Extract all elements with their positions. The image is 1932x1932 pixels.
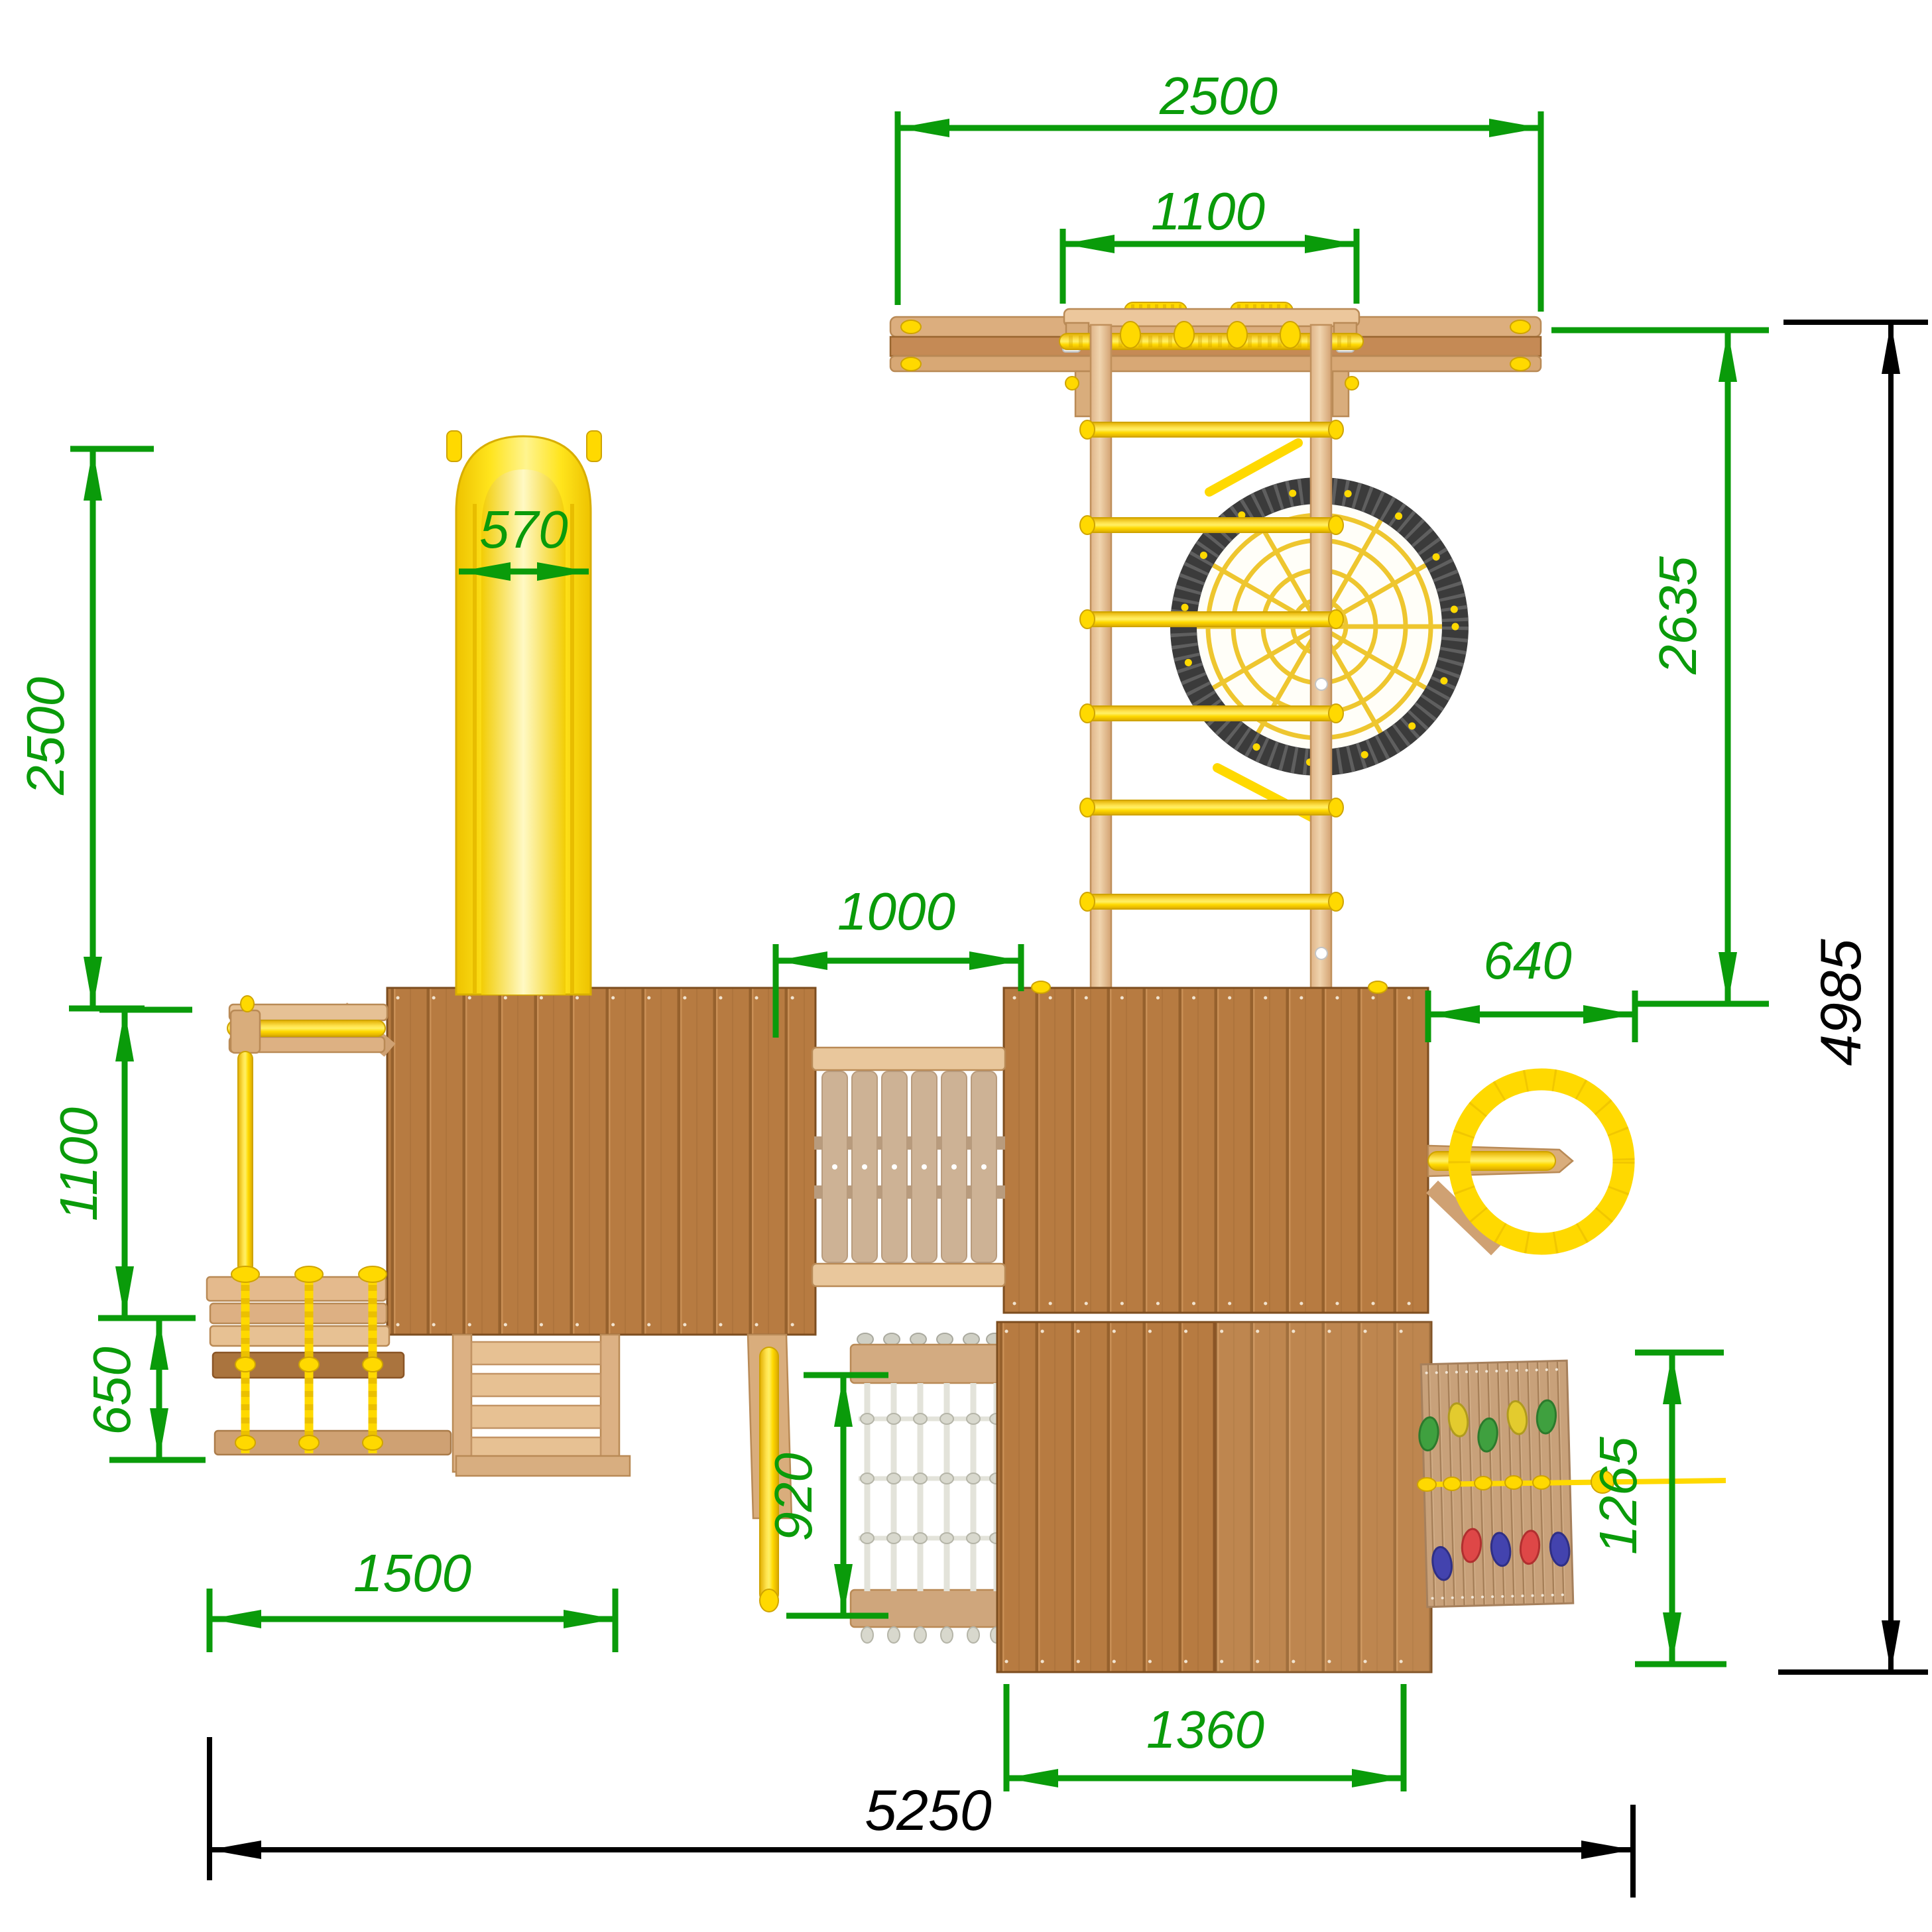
dim-climbwall-drop: 1265 <box>1589 1353 1726 1664</box>
tower-right-roof <box>1004 981 1428 1313</box>
beam-bracket <box>1333 371 1349 416</box>
stair-steps <box>471 1342 601 1460</box>
rope-net <box>851 1333 1006 1643</box>
dim-label-swing-frame-depth: 1100 <box>49 1107 108 1221</box>
bridge-deck <box>812 1048 1005 1286</box>
bridge-planks <box>822 1071 996 1262</box>
bridge-frame <box>812 1048 1005 1070</box>
dim-label-rope-bridge-depth: 650 <box>82 1347 141 1435</box>
playground-plan-svg: 2500 1100 570 2500 1100 650 1000 640 263… <box>0 0 1932 1932</box>
dim-slide-length: 2500 <box>16 449 154 1008</box>
rope-bridge-plank <box>210 1303 387 1323</box>
dim-label-overall-width: 5250 <box>865 1779 991 1842</box>
steering-wheel <box>1428 1079 1624 1249</box>
net-ropes <box>859 1383 1002 1591</box>
beam-bolt <box>901 357 921 371</box>
dim-rope-bridge-depth: 650 <box>82 1318 206 1460</box>
roof-bolt <box>1368 981 1387 993</box>
dim-lower-platform-width: 1360 <box>1006 1684 1404 1791</box>
beam-bolt <box>1510 320 1530 333</box>
dim-top-mount-width: 1100 <box>1063 182 1357 304</box>
stair-stringer <box>453 1335 471 1472</box>
rail-hole <box>1315 947 1327 959</box>
rope-clamp <box>1280 322 1300 348</box>
roof-bolt <box>1032 981 1050 993</box>
frame-end-block <box>231 1010 260 1053</box>
top-beam <box>890 302 1541 416</box>
roof-panel-highlight <box>1215 1322 1431 1672</box>
nest-hanger-strap <box>1217 768 1326 825</box>
rope-bridge-plank <box>210 1326 389 1346</box>
stair-base-board <box>456 1456 630 1476</box>
wheel-axle <box>1428 1152 1555 1170</box>
dim-label-net-drop: 920 <box>764 1453 823 1541</box>
bridge-frame <box>812 1264 1005 1286</box>
dim-label-stairs-bay-width: 1500 <box>353 1543 471 1602</box>
dim-label-top-beam-width: 2500 <box>1159 66 1278 125</box>
lower-platform-roof <box>997 1322 1431 1672</box>
rail-hole <box>1315 678 1327 690</box>
frame-yellow-post <box>238 1052 253 1273</box>
dim-overall-width: 5250 <box>210 1737 1633 1898</box>
pole-tip <box>760 1589 778 1612</box>
dim-stairs-bay-width: 1500 <box>210 1543 615 1652</box>
rope-clamp <box>1227 322 1247 348</box>
rope-bridge-plank <box>207 1277 386 1301</box>
beam-mount-plank <box>1064 309 1359 326</box>
beam-bolt <box>901 320 921 333</box>
stair-stringer <box>601 1335 619 1472</box>
slide-flange <box>587 431 601 461</box>
net-bottom-bar <box>851 1590 1006 1627</box>
dim-label-climbwall-drop: 1265 <box>1589 1437 1648 1555</box>
dim-label-wheel-offset: 640 <box>1483 931 1571 990</box>
beam-bolt <box>1510 357 1530 371</box>
beam-bottom-plank <box>890 356 1541 371</box>
dim-label-bridge-span: 1000 <box>837 882 955 941</box>
slide-flange <box>447 431 461 461</box>
dim-label-lower-platform-width: 1360 <box>1146 1700 1264 1759</box>
dim-label-beam-to-tower-depth: 2635 <box>1648 556 1707 675</box>
swing-frame <box>227 996 390 1273</box>
rope-clamp <box>1120 322 1140 348</box>
dim-label-top-mount-width: 1100 <box>1151 182 1265 241</box>
dim-wheel-offset: 640 <box>1428 931 1635 1042</box>
dim-overall-depth: 4985 <box>1778 322 1928 1672</box>
stairs <box>453 1335 630 1476</box>
drawing-canvas: 2500 1100 570 2500 1100 650 1000 640 263… <box>0 0 1932 1932</box>
frame-knob <box>241 996 254 1012</box>
tower-left-roof <box>387 988 815 1335</box>
dim-swing-frame-depth: 1100 <box>49 1010 196 1318</box>
bracket-bolt <box>1345 377 1358 390</box>
rope-clamp <box>1174 322 1194 348</box>
dim-label-slide-length: 2500 <box>16 677 75 796</box>
dim-label-slide-width: 570 <box>479 500 568 559</box>
net-top-knots <box>857 1333 1002 1345</box>
beam-bracket <box>1075 371 1091 416</box>
dim-label-overall-depth: 4985 <box>1809 938 1873 1065</box>
dim-beam-to-tower-depth: 2635 <box>1551 330 1769 1004</box>
bracket-bolt <box>1065 377 1079 390</box>
